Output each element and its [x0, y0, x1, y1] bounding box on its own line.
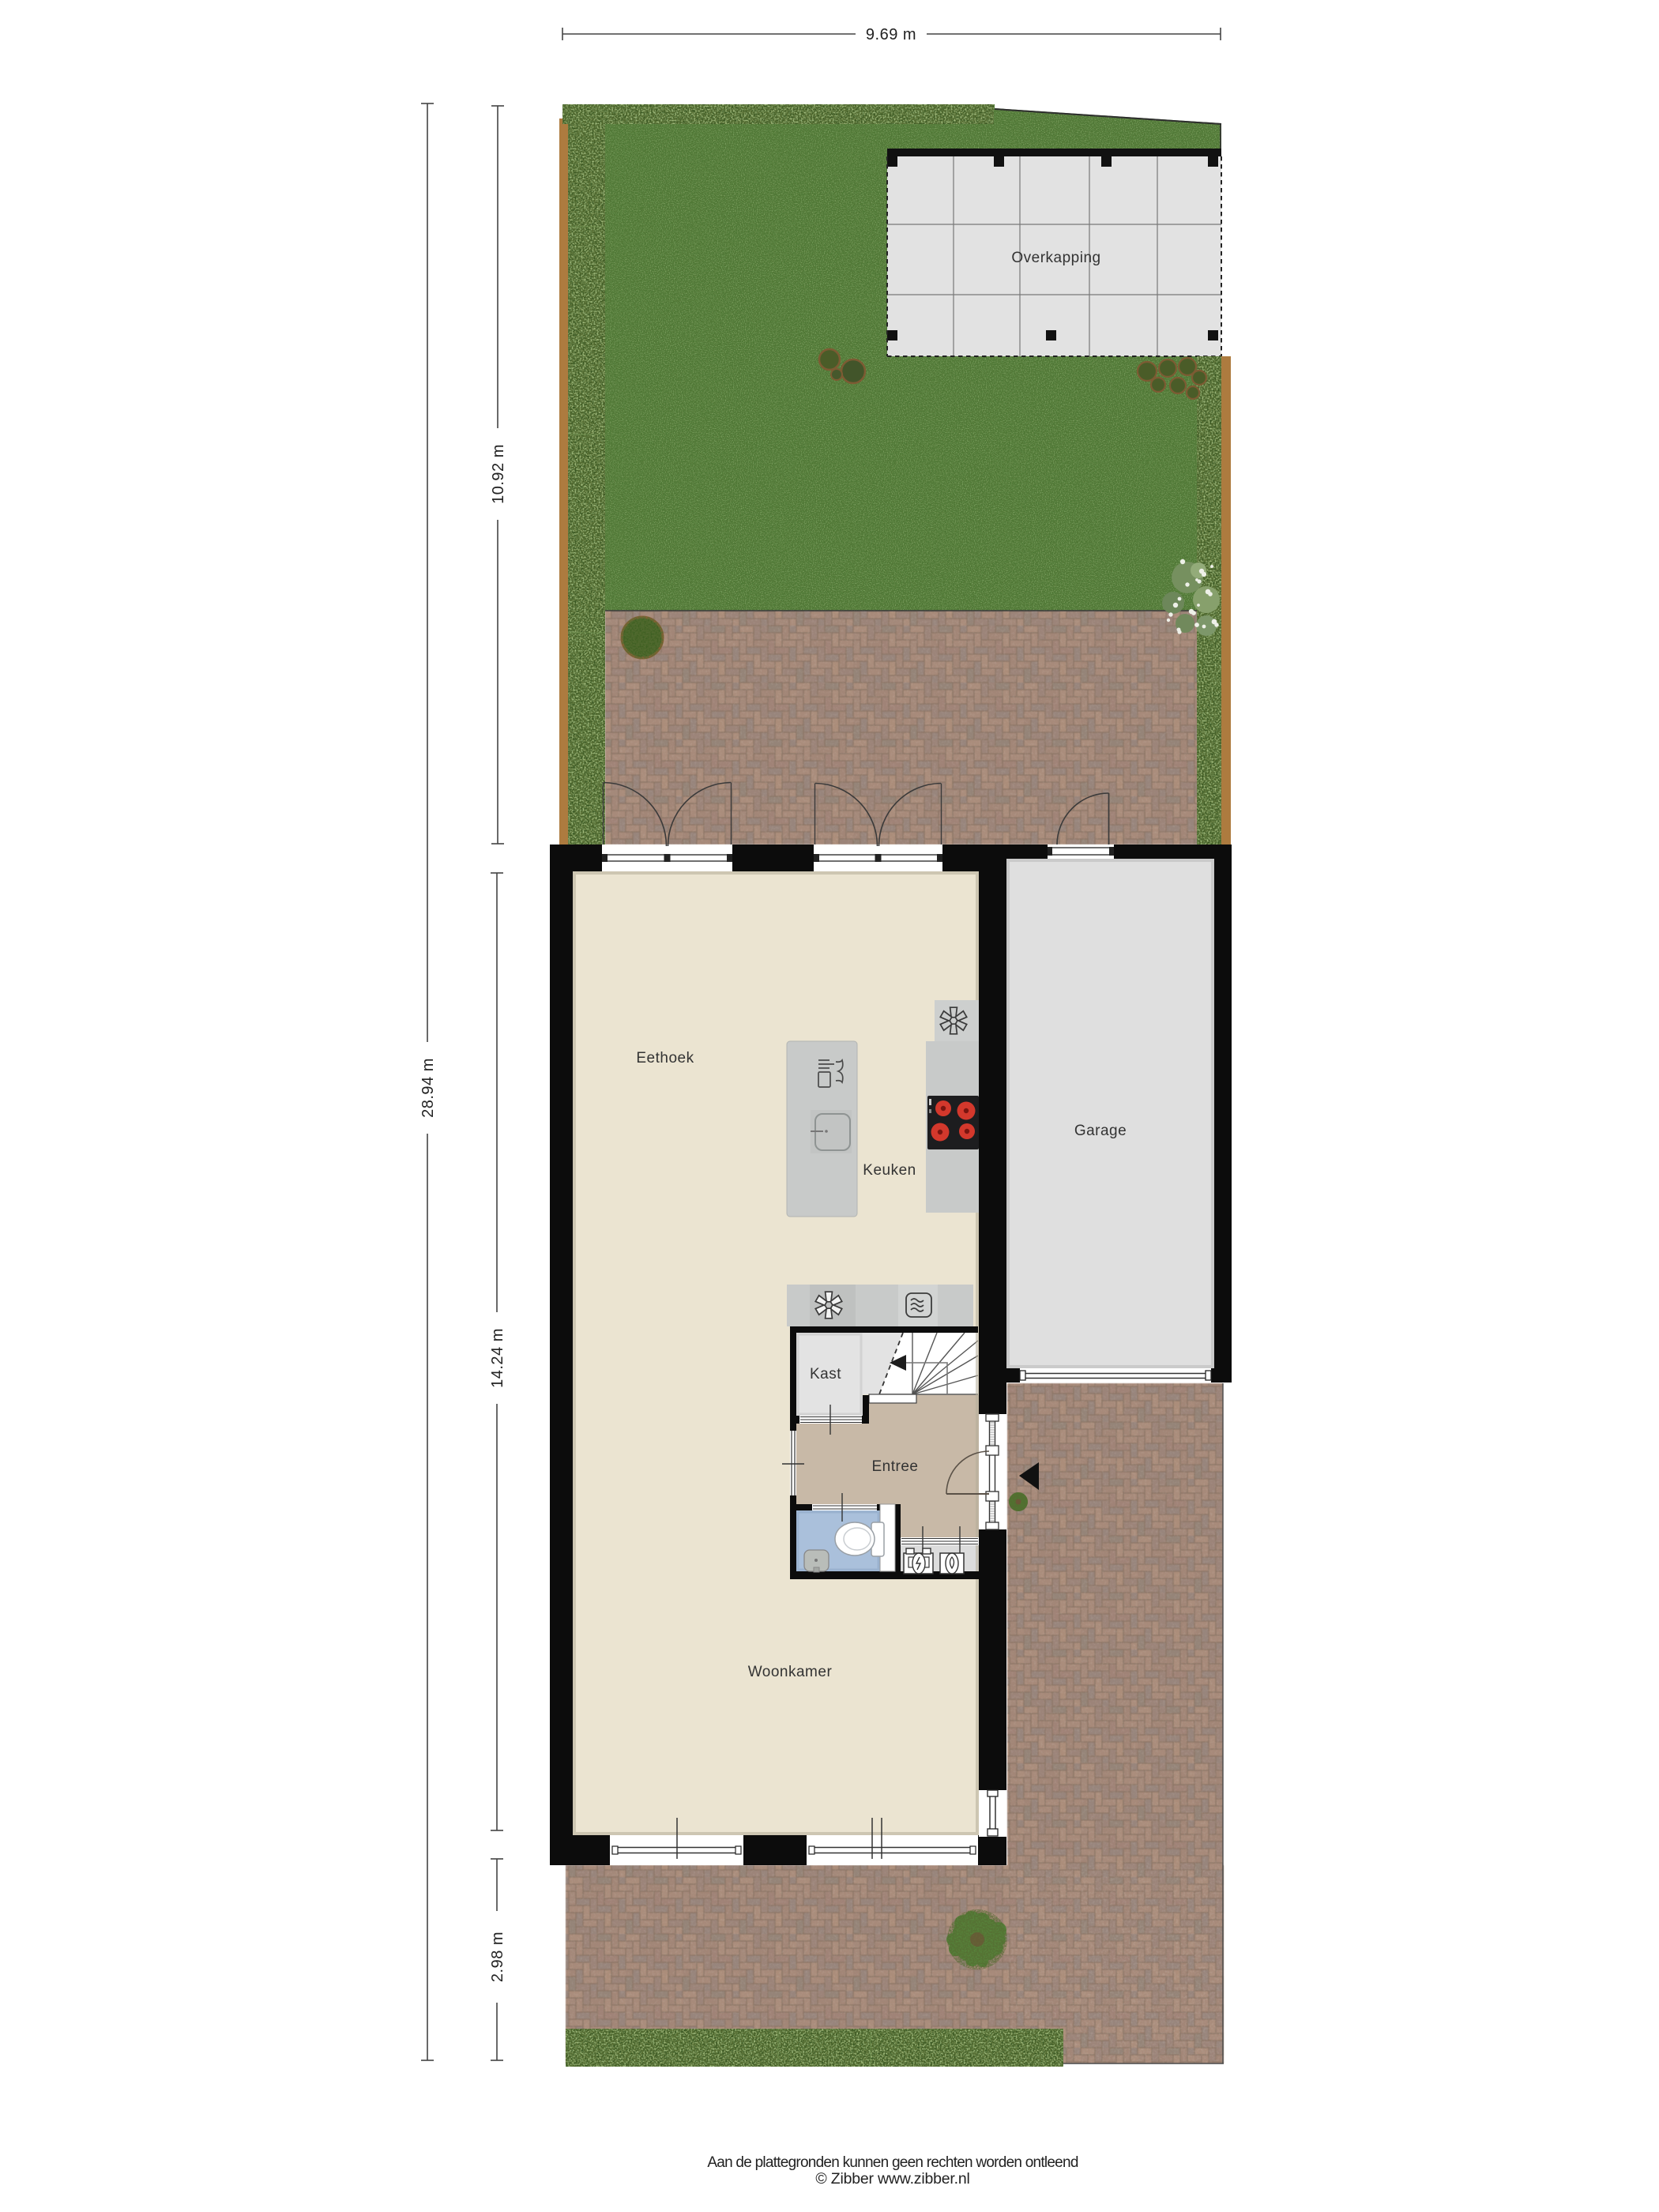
- svg-text:Garage: Garage: [1074, 1123, 1127, 1139]
- svg-text:9.69 m: 9.69 m: [866, 26, 916, 43]
- svg-text:Kast: Kast: [810, 1366, 841, 1382]
- svg-text:14.24 m: 14.24 m: [489, 1328, 506, 1388]
- svg-text:© Zibber www.zibber.nl: © Zibber www.zibber.nl: [815, 2170, 969, 2188]
- svg-text:2.98 m: 2.98 m: [489, 1932, 506, 1982]
- svg-text:Overkapping: Overkapping: [1011, 250, 1100, 266]
- svg-text:Entree: Entree: [872, 1458, 919, 1475]
- svg-text:Woonkamer: Woonkamer: [748, 1664, 833, 1680]
- svg-text:Eethoek: Eethoek: [636, 1050, 694, 1066]
- svg-text:28.94 m: 28.94 m: [419, 1058, 437, 1118]
- svg-text:10.92 m: 10.92 m: [490, 444, 507, 504]
- svg-text:Keuken: Keuken: [863, 1162, 916, 1179]
- svg-text:Aan de plattegronden kunnen ge: Aan de plattegronden kunnen geen rechten…: [707, 2154, 1078, 2171]
